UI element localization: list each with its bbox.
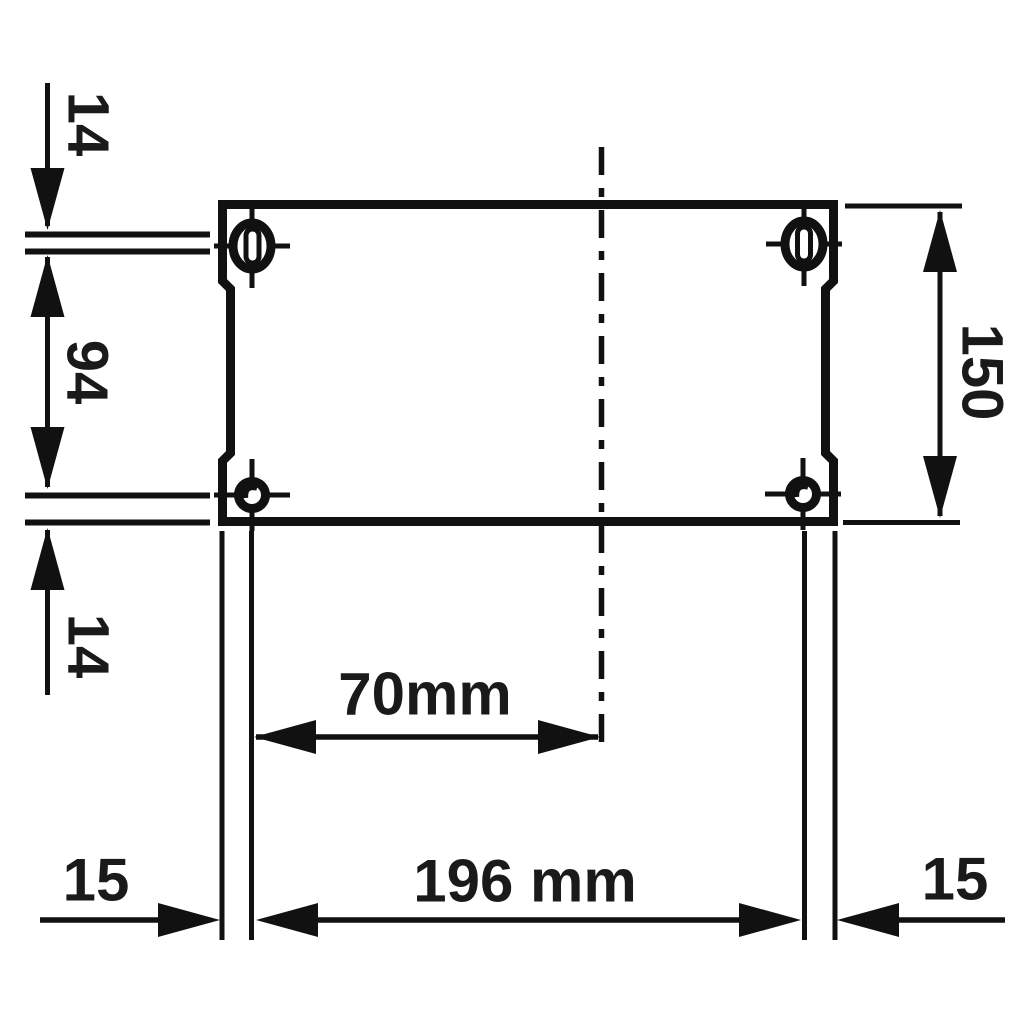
dimension-150: 150 bbox=[843, 206, 1015, 523]
drawing-canvas: 14 94 14 150 70mm 19 bbox=[0, 0, 1024, 1024]
dimension-14-bottom: 14 bbox=[31, 528, 121, 695]
dimension-15-left: 15 bbox=[40, 847, 220, 938]
dim-70-label: 70mm bbox=[338, 661, 511, 728]
dim-150-arrow-up bbox=[923, 210, 957, 272]
dim-70-arrow-right bbox=[538, 720, 600, 754]
technical-drawing: 14 94 14 150 70mm 19 bbox=[0, 0, 1024, 1024]
dim-14-bottom-label: 14 bbox=[56, 614, 121, 679]
dim-15-right-label: 15 bbox=[922, 846, 989, 913]
hole-top-left-slot bbox=[246, 229, 259, 263]
dim-14-top-label: 14 bbox=[56, 92, 121, 157]
dim-15-left-arrow bbox=[158, 903, 220, 937]
dimension-70: 70mm bbox=[254, 661, 600, 755]
dim-94-label: 94 bbox=[55, 340, 120, 405]
dim-196-arrow-left bbox=[256, 903, 318, 937]
dim-14-top-arrow-down bbox=[31, 168, 65, 230]
dim-15-right-arrow bbox=[837, 903, 899, 937]
dim-196-arrow-right bbox=[739, 903, 801, 937]
dim-94-arrow-up bbox=[31, 255, 65, 317]
dimension-94: 94 bbox=[31, 255, 120, 489]
dimension-15-right: 15 bbox=[837, 846, 1005, 938]
dim-196-label: 196 mm bbox=[413, 848, 636, 915]
dimension-196: 196 mm bbox=[256, 848, 801, 938]
dim-150-label: 150 bbox=[950, 324, 1015, 421]
dim-15-left-label: 15 bbox=[63, 847, 130, 914]
dimension-14-top: 14 bbox=[31, 83, 121, 230]
dim-150-arrow-down bbox=[923, 456, 957, 518]
dim-70-arrow-left bbox=[254, 720, 316, 754]
dim-14-bottom-arrow-up bbox=[31, 528, 65, 590]
dim-94-arrow-down bbox=[31, 427, 65, 489]
part-outline bbox=[223, 205, 834, 522]
hole-top-right-slot bbox=[798, 227, 811, 261]
